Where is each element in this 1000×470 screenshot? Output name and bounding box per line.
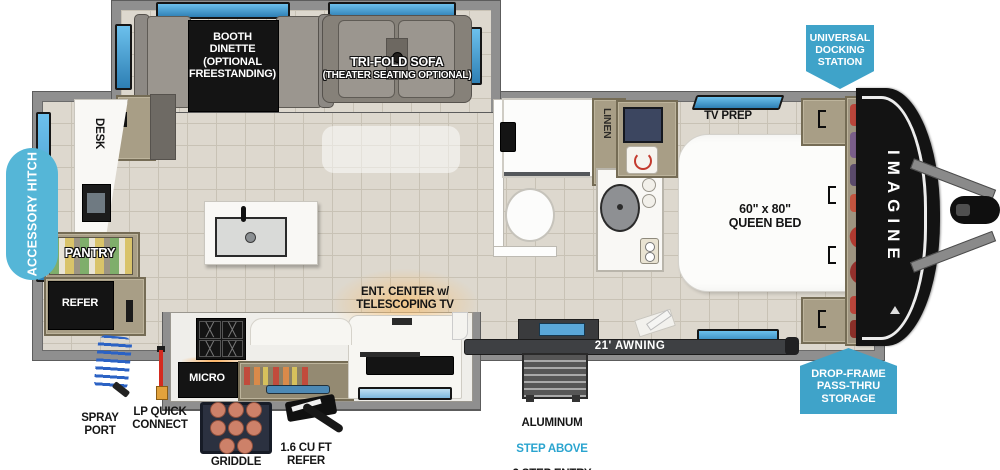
shower-fixture xyxy=(500,122,516,152)
desk-label: DESK xyxy=(92,118,105,149)
island-faucet xyxy=(241,206,246,222)
step-leg xyxy=(572,395,580,402)
utensil-tray xyxy=(266,385,330,394)
accessory-hitch-badge: ACCESSORY HITCH xyxy=(6,148,58,280)
refer-label: REFER xyxy=(48,297,112,309)
counter-top-edge xyxy=(250,318,352,345)
sofa-label-2: (THEATER SEATING OPTIONAL) xyxy=(308,70,486,81)
tv-prep-label: TV PREP xyxy=(668,110,788,123)
awning-label: 21' AWNING xyxy=(560,340,700,353)
hitch-coupler xyxy=(950,196,1000,224)
linen-label: LINEN xyxy=(600,108,612,139)
micro-label: MICRO xyxy=(178,372,236,384)
spray-port-label: SPRAY PORT xyxy=(68,412,132,438)
bathroom-wall-2 xyxy=(493,246,557,257)
slide-side-window xyxy=(115,24,132,90)
tall-cabinet xyxy=(150,94,176,160)
laptop xyxy=(82,184,111,222)
universal-docking-badge: UNIVERSAL DOCKING STATION xyxy=(806,25,874,89)
tv-screen xyxy=(623,107,663,143)
sofa-label-1: TRI-FOLD SOFA xyxy=(318,55,476,69)
outlet-panel xyxy=(640,238,659,264)
lp-quick-connect-label: LP QUICK CONNECT xyxy=(124,406,196,432)
brand-logo: IMAGINE xyxy=(884,150,903,265)
island-sink xyxy=(215,217,287,257)
vanity-sink xyxy=(600,184,640,232)
griddle-label: GRIDDLE xyxy=(196,456,276,469)
accessory-hitch-text: ACCESSORY HITCH xyxy=(25,152,39,277)
lp-connector xyxy=(156,386,168,400)
bedroom-skylight xyxy=(692,95,785,110)
telescoping-tv xyxy=(366,356,454,375)
tv-rail xyxy=(360,352,420,357)
front-cap: IMAGINE xyxy=(856,88,940,346)
step-leg xyxy=(526,395,534,402)
counter-end xyxy=(452,312,468,340)
area-rug xyxy=(322,126,460,173)
griddle xyxy=(200,402,272,454)
kitchen-run-window xyxy=(358,387,452,400)
entry-label: ALUMINUM STEP ABOVE 3 STEP ENTRY xyxy=(504,404,600,470)
floorplan-canvas: BOOTH DINETTE (OPTIONAL FREESTANDING) TR… xyxy=(0,0,1000,470)
stool xyxy=(392,318,412,325)
fireplace-insert xyxy=(626,146,658,174)
booth-dinette-label: BOOTH DINETTE (OPTIONAL FREESTANDING) xyxy=(188,31,277,80)
shower xyxy=(502,98,596,178)
vanity xyxy=(596,168,664,272)
ent-center-label: ENT. CENTER w/ TELESCOPING TV xyxy=(335,286,475,312)
entry-mat xyxy=(539,323,585,336)
refer-door-swing xyxy=(126,300,133,322)
entry-platform xyxy=(518,319,599,340)
kitchen-island xyxy=(204,201,318,265)
queen-bed-label: 60" x 80"QUEEN BED xyxy=(700,202,830,230)
cooktop: ╳ ╳ ╳ ╳ xyxy=(196,318,246,360)
exterior-refer-label: 1.6 CU FT REFER xyxy=(272,442,340,468)
lp-line xyxy=(159,350,163,388)
dinette-bench-right xyxy=(276,16,322,108)
kitchen-drawers xyxy=(238,361,354,401)
toilet xyxy=(505,188,555,242)
entry-steps xyxy=(522,353,588,399)
step-above-text: STEP ABOVE xyxy=(516,443,588,455)
